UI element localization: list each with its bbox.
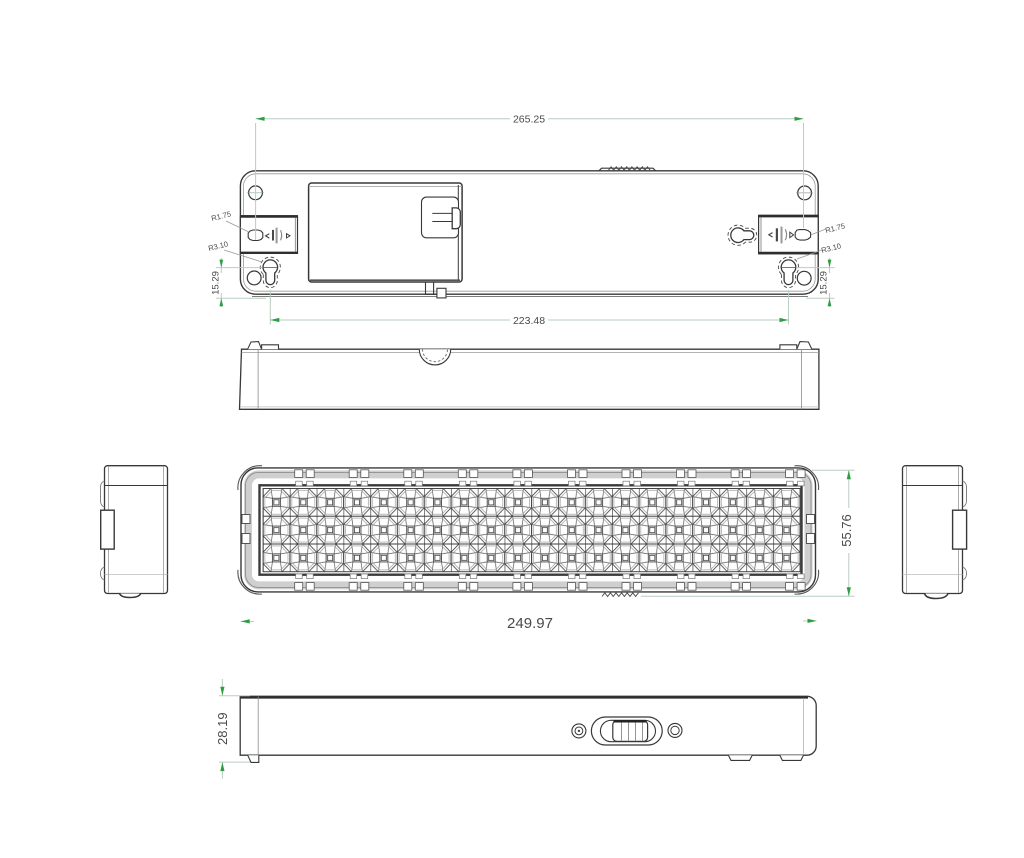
svg-text:249.97: 249.97: [507, 615, 553, 632]
svg-text:223.48: 223.48: [513, 315, 545, 327]
svg-text:28.19: 28.19: [215, 712, 230, 745]
svg-text:R1.75: R1.75: [824, 221, 846, 235]
svg-text:15.29: 15.29: [819, 271, 830, 295]
svg-text:R3.10: R3.10: [820, 241, 842, 255]
svg-text:55.76: 55.76: [839, 514, 854, 547]
svg-text:265.25: 265.25: [513, 114, 545, 126]
svg-text:R1.75: R1.75: [210, 209, 232, 223]
svg-text:15.29: 15.29: [211, 271, 222, 295]
